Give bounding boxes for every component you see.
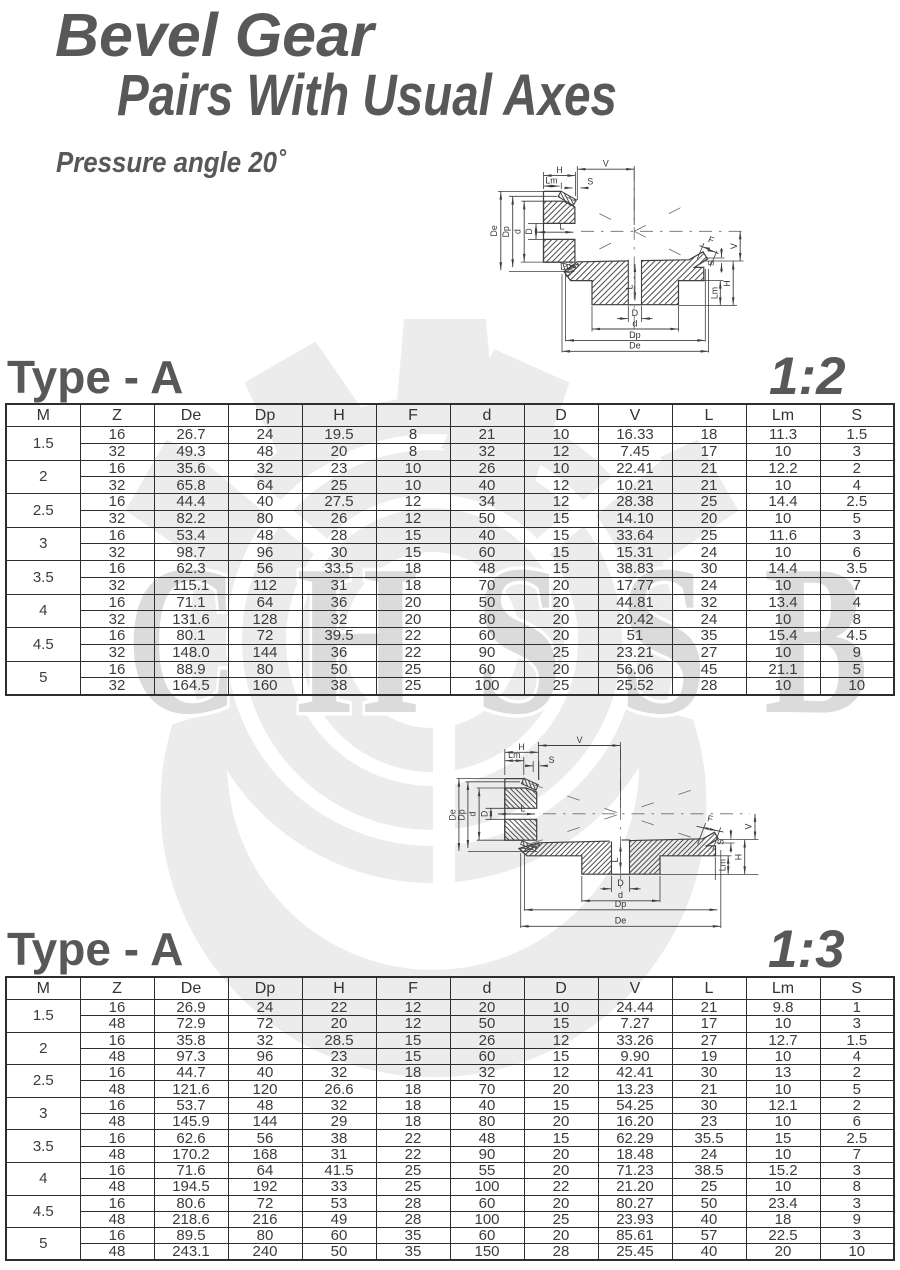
svg-text:De: De bbox=[629, 341, 641, 351]
svg-text:D: D bbox=[524, 228, 534, 234]
svg-text:V: V bbox=[603, 159, 609, 169]
svg-text:D: D bbox=[632, 308, 639, 318]
svg-text:L: L bbox=[560, 222, 565, 232]
svg-text:Lm: Lm bbox=[709, 287, 719, 299]
svg-text:Dp: Dp bbox=[629, 330, 641, 340]
svg-text:Dp: Dp bbox=[456, 809, 466, 820]
svg-text:H: H bbox=[733, 854, 743, 860]
svg-text:D: D bbox=[617, 878, 624, 888]
svg-text:D: D bbox=[479, 811, 489, 817]
svg-text:V: V bbox=[577, 735, 583, 745]
svg-text:L: L bbox=[624, 284, 634, 289]
svg-text:d: d bbox=[513, 229, 523, 234]
svg-text:H: H bbox=[556, 165, 562, 175]
svg-text:S: S bbox=[587, 176, 593, 186]
svg-text:Lm: Lm bbox=[545, 176, 557, 186]
svg-text:F: F bbox=[706, 813, 714, 824]
svg-text:V: V bbox=[729, 243, 739, 249]
svg-text:F: F bbox=[707, 234, 716, 246]
svg-text:S: S bbox=[716, 839, 726, 845]
svg-text:L: L bbox=[521, 803, 526, 813]
svg-text:Dp: Dp bbox=[615, 899, 627, 909]
svg-text:d: d bbox=[468, 812, 478, 817]
svg-text:Lm: Lm bbox=[508, 750, 520, 760]
svg-text:S: S bbox=[549, 755, 555, 765]
svg-text:L: L bbox=[610, 857, 620, 862]
svg-text:S: S bbox=[706, 260, 716, 266]
svg-text:Dp: Dp bbox=[501, 226, 511, 237]
svg-text:De: De bbox=[489, 225, 499, 236]
svg-text:Lm: Lm bbox=[718, 859, 728, 871]
svg-text:De: De bbox=[615, 916, 627, 926]
svg-text:H: H bbox=[722, 280, 732, 286]
svg-text:d: d bbox=[632, 318, 637, 328]
svg-text:V: V bbox=[744, 824, 754, 830]
